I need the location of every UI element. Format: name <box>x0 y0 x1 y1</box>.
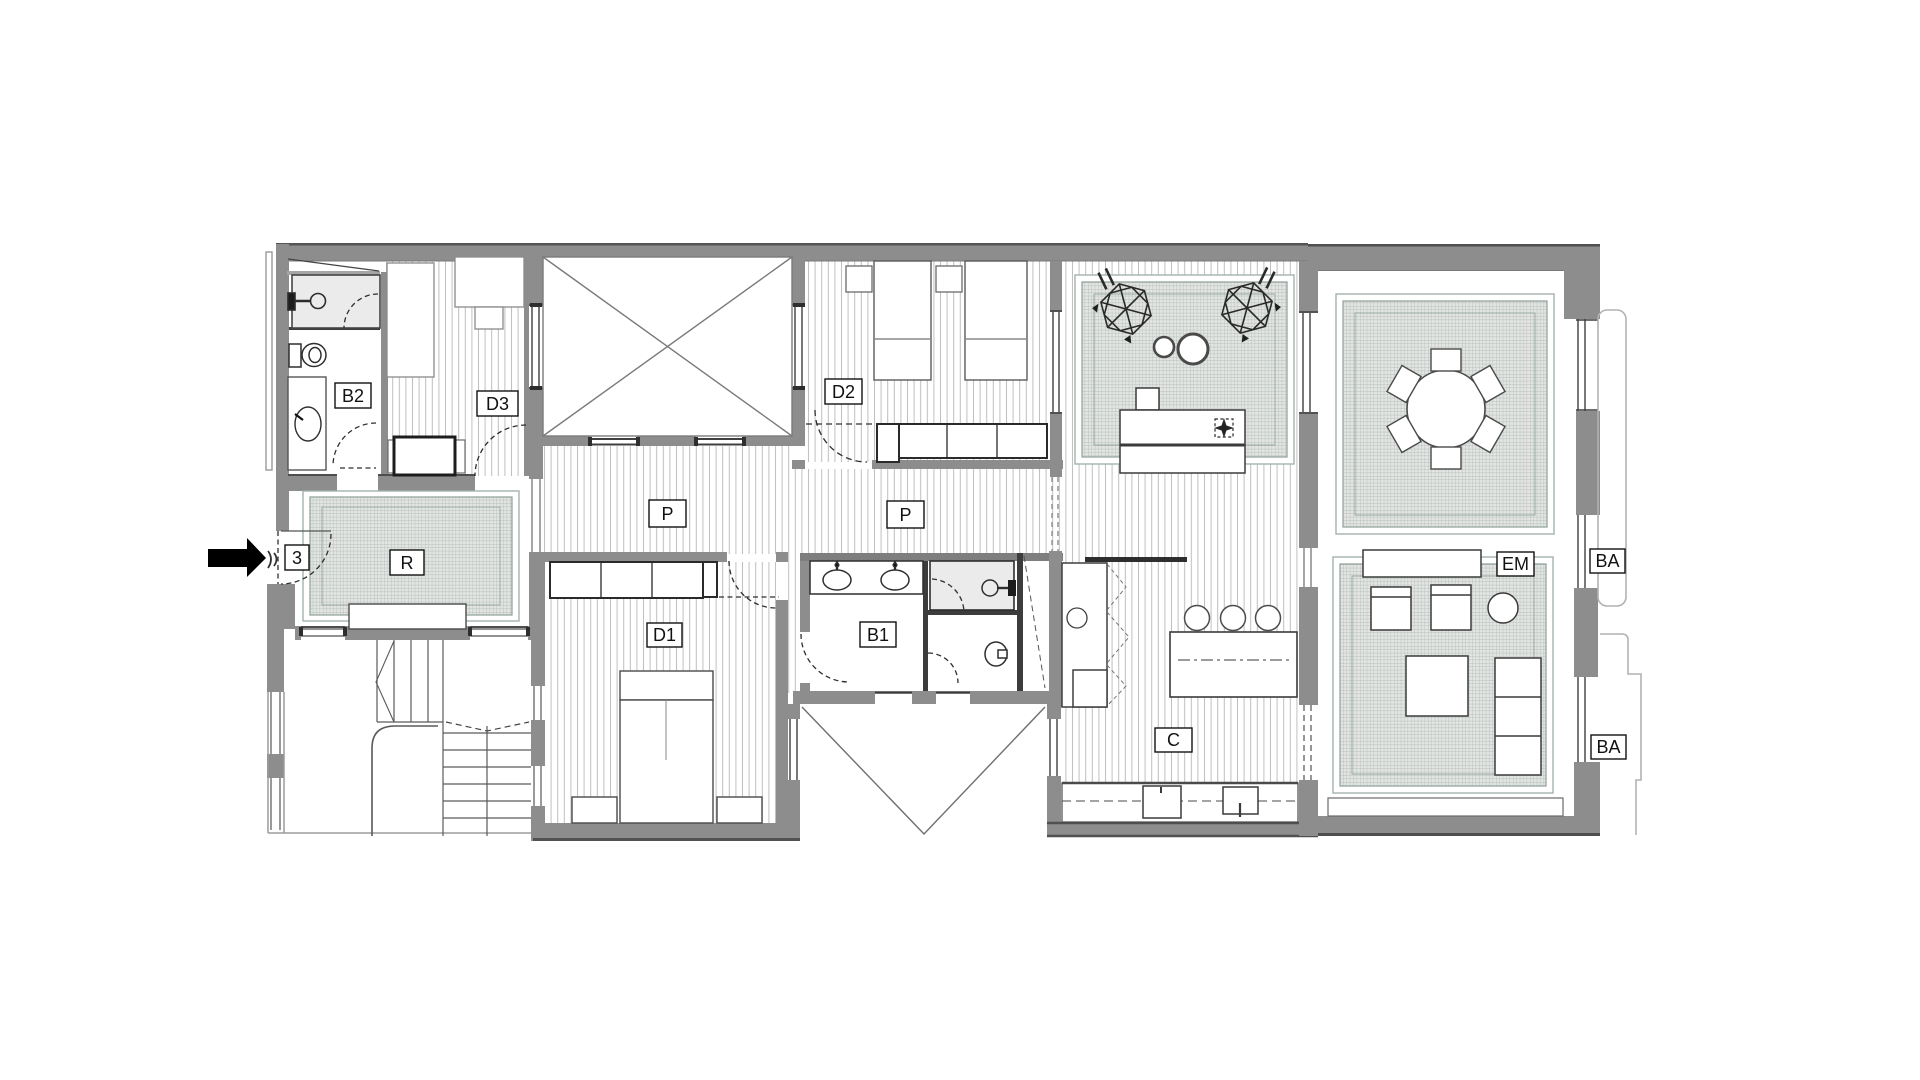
svg-text:B1: B1 <box>867 625 889 645</box>
svg-text:D3: D3 <box>486 394 509 414</box>
svg-text:EM: EM <box>1502 554 1529 574</box>
svg-text:R: R <box>401 553 414 573</box>
svg-text:P: P <box>661 504 673 524</box>
svg-text:B2: B2 <box>342 386 364 406</box>
svg-text:3: 3 <box>292 548 302 568</box>
svg-text:BA: BA <box>1595 551 1619 571</box>
svg-text:P: P <box>899 505 911 525</box>
svg-text:C: C <box>1167 730 1180 750</box>
svg-text:D2: D2 <box>832 382 855 402</box>
svg-text:D1: D1 <box>653 625 676 645</box>
svg-text:BA: BA <box>1596 737 1620 757</box>
